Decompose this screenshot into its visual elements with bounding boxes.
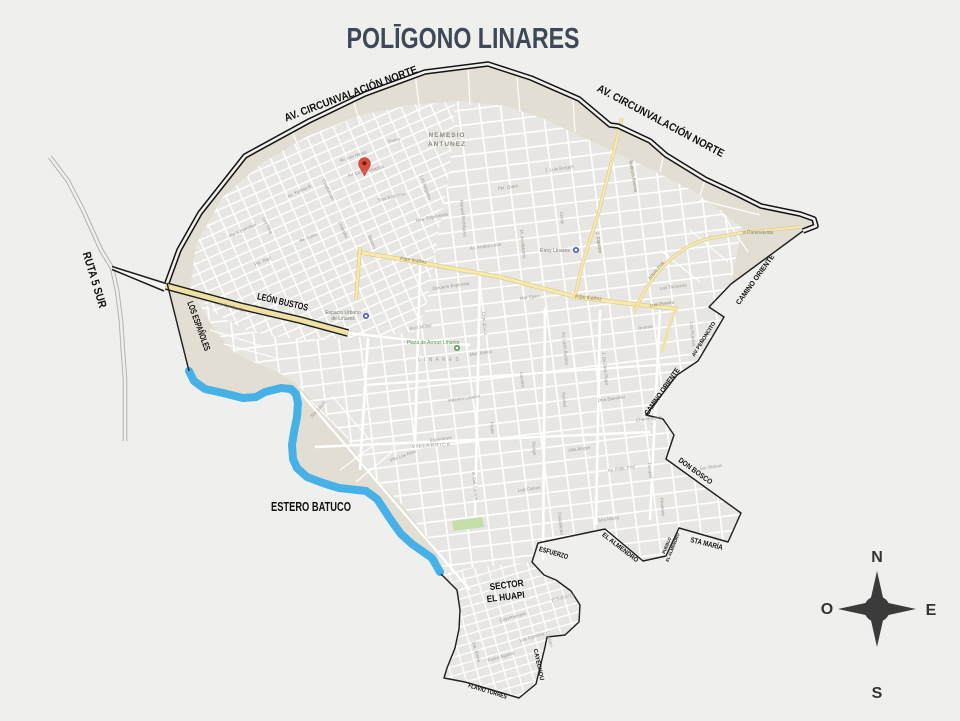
svg-text:S: S <box>872 685 883 702</box>
svg-text:POLĪGONO LINARES: POLĪGONO LINARES <box>347 23 580 55</box>
svg-text:N: N <box>871 549 883 566</box>
svg-text:ANTUNEZ: ANTUNEZ <box>428 141 466 148</box>
svg-text:LINARES: LINARES <box>418 357 462 363</box>
svg-text:Plaza de Armas Linares: Plaza de Armas Linares <box>407 340 460 346</box>
svg-text:NEMESIO: NEMESIO <box>429 132 466 139</box>
svg-text:a Panimávida: a Panimávida <box>743 230 774 236</box>
svg-text:E: E <box>926 602 937 619</box>
svg-text:O: O <box>821 601 833 618</box>
svg-text:Easy Linares: Easy Linares <box>540 248 570 254</box>
svg-text:ESTERO BATUCO: ESTERO BATUCO <box>271 499 351 514</box>
svg-text:de Linares: de Linares <box>331 316 355 322</box>
